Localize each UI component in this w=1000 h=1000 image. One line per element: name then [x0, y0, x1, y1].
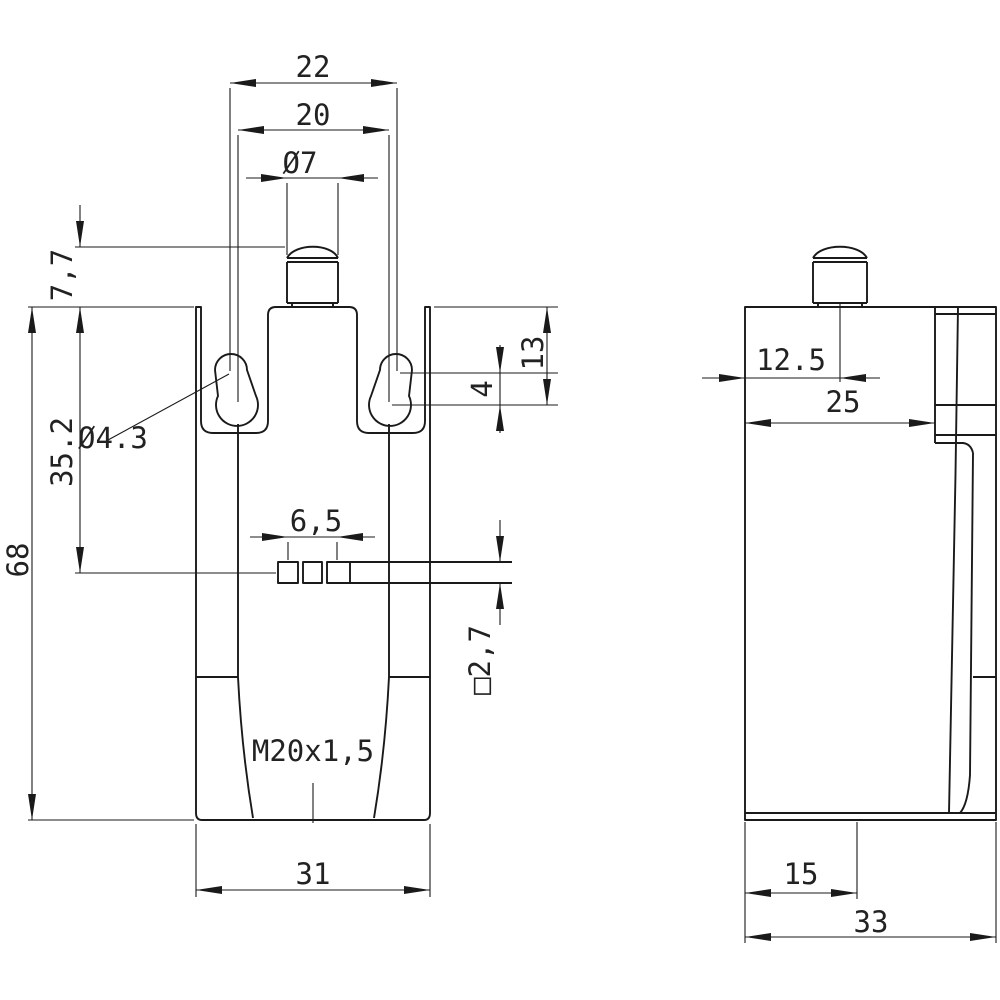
dim-dia7-label: Ø7: [283, 146, 318, 180]
dim-20-label: 20: [296, 98, 331, 132]
background: [0, 0, 1000, 1000]
dim-33-label: 33: [854, 905, 889, 939]
dim-15-label: 15: [784, 857, 819, 891]
dim-12-5-label: 12.5: [756, 343, 826, 377]
drawing-canvas: 22 20 Ø7 7,7 68 35.2: [0, 0, 1000, 1000]
dim-31-label: 31: [296, 857, 331, 891]
dim-68-label: 68: [1, 543, 35, 578]
dim-7-7-label: 7,7: [45, 249, 79, 301]
dim-dia4-3-label: Ø4.3: [78, 421, 148, 455]
dim-25-label: 25: [826, 385, 861, 419]
dim-22-label: 22: [296, 50, 331, 84]
dim-35-2-label: 35.2: [45, 417, 79, 487]
thread-label: M20x1,5: [252, 734, 374, 768]
dim-4-label: 4: [465, 380, 499, 397]
dim-13-label: 13: [516, 336, 550, 371]
dim-6-5-label: 6,5: [290, 504, 342, 538]
technical-drawing: 22 20 Ø7 7,7 68 35.2: [0, 0, 1000, 1000]
dim-square-2-7-label: □2,7: [463, 625, 497, 695]
